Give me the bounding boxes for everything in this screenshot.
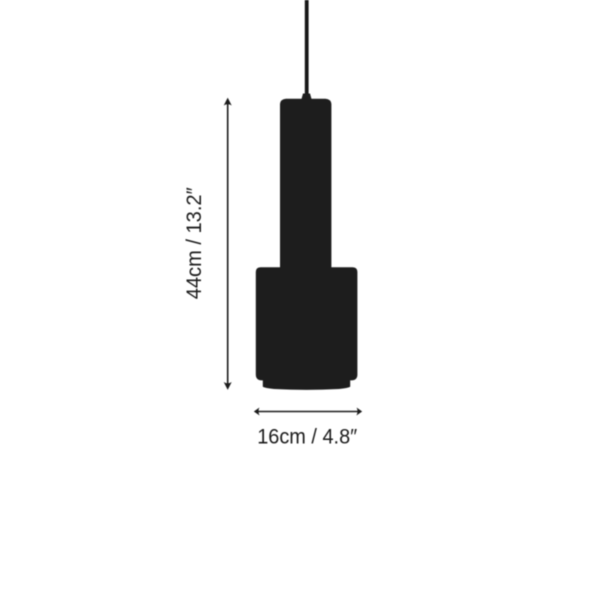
svg-text:16cm / 4.8″: 16cm / 4.8″ (257, 426, 358, 449)
svg-text:44cm / 13.2″: 44cm / 13.2″ (183, 187, 206, 300)
